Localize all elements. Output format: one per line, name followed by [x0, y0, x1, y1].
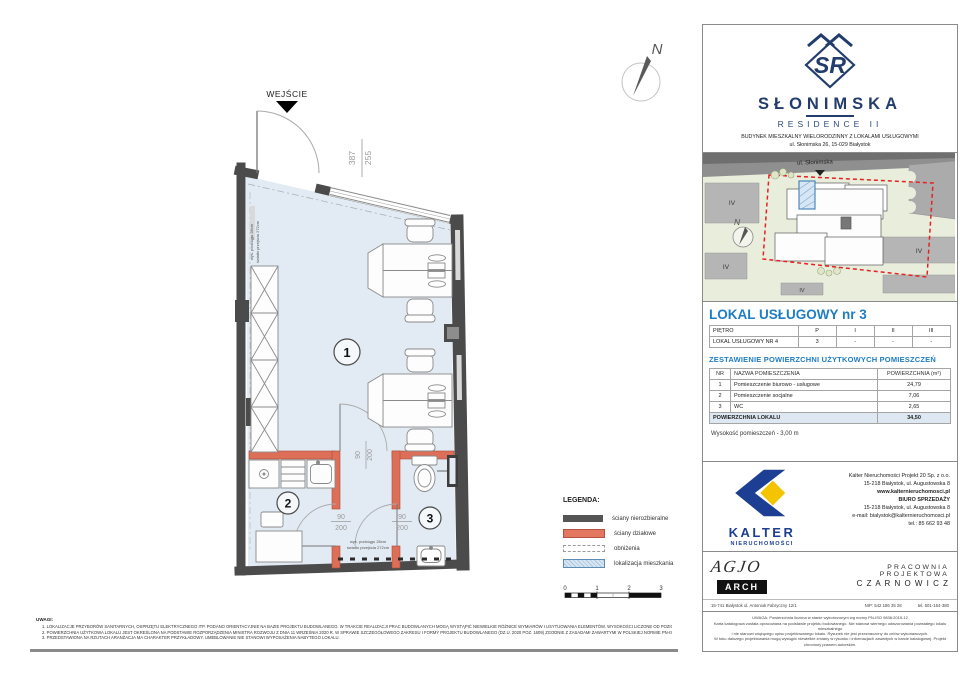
- legend-item: ściany działowe: [563, 526, 695, 541]
- legend-item: lokalizacja mieszkania: [563, 556, 695, 571]
- svg-text:200: 200: [396, 525, 408, 532]
- entrance-door: WEJŚCIE: [257, 88, 319, 173]
- window-dimension: 387 255: [347, 139, 373, 177]
- svg-text:90: 90: [398, 514, 406, 521]
- brand-underline: [806, 115, 854, 117]
- developer-block: KALTER NIERUCHOMOŚCI Kalter Nieruchomośc…: [703, 461, 957, 551]
- walls-partition-swatch: [563, 529, 605, 538]
- table-row: 3 WC 2,65: [710, 401, 951, 412]
- area-table: NR NAZWA POMIESZCZENIA POWIERZCHNIA (m²)…: [709, 368, 951, 424]
- brand-block: SR SŁONIMSKA RESIDENCE II BUDYNEK MIESZK…: [703, 25, 957, 152]
- site-plan: ul. Słonimska IV IV IV IV: [703, 152, 957, 302]
- catalog-sheet: N: [0, 0, 960, 678]
- contact-line[interactable]: www.kalternieruchomosci.pl: [814, 488, 950, 496]
- svg-text:SR: SR: [814, 52, 846, 78]
- north-label: N: [652, 41, 663, 58]
- table-row: 2 Pomieszczenie socjalne 7,06: [710, 390, 951, 401]
- table-header-row: NR NAZWA POMIESZCZENIA POWIERZCHNIA (m²): [710, 368, 951, 379]
- legend-title: LEGENDA:: [563, 497, 695, 504]
- agjo-script: AGJO: [710, 557, 763, 577]
- lowered-ceiling-swatch: [563, 545, 605, 552]
- north-arrow: N: [622, 41, 663, 101]
- ceiling-note-hall: wys. podciągu 28cm światło przejścia 272…: [347, 539, 390, 550]
- contact-line: 15-218 Białystok, ul. Augustowska 8: [814, 504, 950, 512]
- walls-fixed-swatch: [563, 515, 603, 522]
- room-2-marker: 2: [277, 492, 299, 514]
- architect-tel: tel. 501-154-380: [918, 603, 949, 608]
- svg-text:255: 255: [363, 151, 373, 165]
- svg-text:3: 3: [659, 586, 663, 592]
- kalter-subname: NIERUCHOMOŚCI: [710, 541, 814, 547]
- legend-item: ściany nierozbieralne: [563, 511, 695, 526]
- ceiling-note-left: wys. podciągu 28cm światło przejścia 272…: [249, 220, 260, 263]
- entrance-arrow-icon: [276, 101, 298, 113]
- svg-text:387: 387: [347, 151, 357, 165]
- building-description: BUDYNEK MIESZKALNY WIELORODZINNY Z LOKAL…: [703, 134, 957, 140]
- height-note: Wysokość pomieszczeń - 3,00 m: [703, 424, 957, 437]
- entrance-label: WEJŚCIE: [266, 88, 307, 99]
- room-1-marker: 1: [334, 339, 360, 365]
- note-line: 3. PRZEDSTAWIONA NA RZUTACH ARANŻACJA MA…: [42, 635, 672, 641]
- architect-block: AGJO ARCH PRACOWNIA PROJEKTOWA C Z A R N…: [703, 551, 957, 611]
- agjo-logo: AGJO ARCH: [711, 557, 819, 595]
- svg-text:2: 2: [627, 586, 631, 592]
- svg-text:N: N: [734, 217, 741, 227]
- brand-subname: RESIDENCE II: [703, 119, 957, 129]
- svg-text:0: 0: [563, 586, 567, 592]
- svg-text:światło przejścia 272cm: światło przejścia 272cm: [347, 545, 390, 550]
- building-address: ul. Słonimska 26, 15-029 Białystok: [703, 142, 957, 148]
- architect-nip: NIP: 542 186 35 28: [865, 603, 902, 608]
- table-row: LOKAL USŁUGOWY NR 4 3 - - -: [710, 336, 951, 347]
- svg-text:wys. podciągu 28cm: wys. podciągu 28cm: [350, 539, 387, 544]
- arch-badge: ARCH: [717, 580, 767, 594]
- svg-text:200: 200: [335, 525, 347, 532]
- notes-title: UWAGI:: [36, 617, 672, 622]
- brand-logo-icon: SR: [798, 31, 862, 89]
- svg-text:90: 90: [355, 451, 362, 459]
- svg-text:3: 3: [427, 512, 434, 526]
- svg-text:IV: IV: [723, 264, 730, 271]
- kalter-logo: KALTER NIERUCHOMOŚCI: [710, 468, 814, 547]
- legend: LEGENDA: ściany nierozbieralne ściany dz…: [563, 497, 695, 608]
- svg-text:światło przejścia 272cm: światło przejścia 272cm: [255, 220, 260, 263]
- svg-text:1: 1: [595, 586, 599, 592]
- svg-text:IV: IV: [799, 288, 805, 294]
- info-panel: SR SŁONIMSKA RESIDENCE II BUDYNEK MIESZK…: [702, 24, 958, 652]
- street-label: ul. Słonimska: [797, 159, 834, 166]
- contact-line: Kalter Nieruchomości Projekt 20 Sp. z o.…: [814, 472, 950, 480]
- unit-location-swatch: [563, 559, 605, 568]
- wall-pier-left: [235, 300, 249, 322]
- kalter-contact: Kalter Nieruchomości Projekt 20 Sp. z o.…: [814, 468, 950, 547]
- contact-line[interactable]: e-mail: bialystok@kalternieruchomosci.pl: [814, 512, 950, 520]
- notes-block: UWAGI: 1. LOKALIZACJE PRZYBORÓW SANITARN…: [36, 617, 672, 641]
- legend-item: obniżenia: [563, 541, 695, 556]
- floor-table: PIĘTRO P I II III LOKAL USŁUGOWY NR 4 3 …: [709, 325, 951, 348]
- svg-text:wys. podciągu 28cm: wys. podciągu 28cm: [249, 223, 254, 260]
- area-table-title: ZESTAWIENIE POWIERZCHNI UŻYTKOWYCH POMIE…: [703, 348, 957, 368]
- svg-text:2: 2: [285, 497, 292, 511]
- highlighted-unit: [799, 181, 815, 209]
- svg-text:200: 200: [367, 449, 374, 461]
- disclaimer-line: Karta katalogowa została opracowana na p…: [708, 621, 952, 632]
- room-3-marker: 3: [419, 507, 441, 529]
- table-total-row: POWIERZCHNIA LOKALU 34,50: [710, 412, 951, 423]
- kalter-logo-icon: [733, 468, 791, 518]
- svg-text:90: 90: [337, 514, 345, 521]
- svg-text:IV: IV: [916, 248, 923, 255]
- svg-text:IV: IV: [729, 200, 736, 207]
- note-line: 1. LOKALIZACJE PRZYBORÓW SANITARNYCH, OS…: [42, 624, 672, 630]
- contact-line: 15-218 Białystok, ul. Augustowska 8: [814, 480, 950, 488]
- kalter-name: KALTER: [710, 525, 814, 540]
- brand-name: SŁONIMSKA: [703, 95, 957, 114]
- unit-title: LOKAL USŁUGOWY nr 3: [703, 302, 957, 325]
- disclaimer-line: W toku dalszego projektowania mogą wystą…: [708, 636, 952, 647]
- sheet-bottom-rule: [30, 649, 678, 652]
- studio-name: PRACOWNIA PROJEKTOWA C Z A R N O W I C Z: [819, 564, 949, 588]
- cabinet: [251, 266, 278, 452]
- disclaimer: UWAGA: Powierzchnia liczona w stanie wyk…: [703, 611, 957, 651]
- scale-bar: 0 1 2 3: [563, 583, 667, 603]
- table-row: PIĘTRO P I II III: [710, 325, 951, 336]
- svg-text:1: 1: [343, 345, 350, 360]
- contact-line: tel.: 85 662 93 48: [814, 520, 950, 528]
- contact-line: BIURO SPRZEDAŻY: [814, 496, 950, 504]
- architect-address: 15-741 Białystok ul. Antoniuk Fabryczny …: [711, 603, 797, 608]
- table-row: 1 Pomieszczenie biurowo - usługowe 24,79: [710, 379, 951, 390]
